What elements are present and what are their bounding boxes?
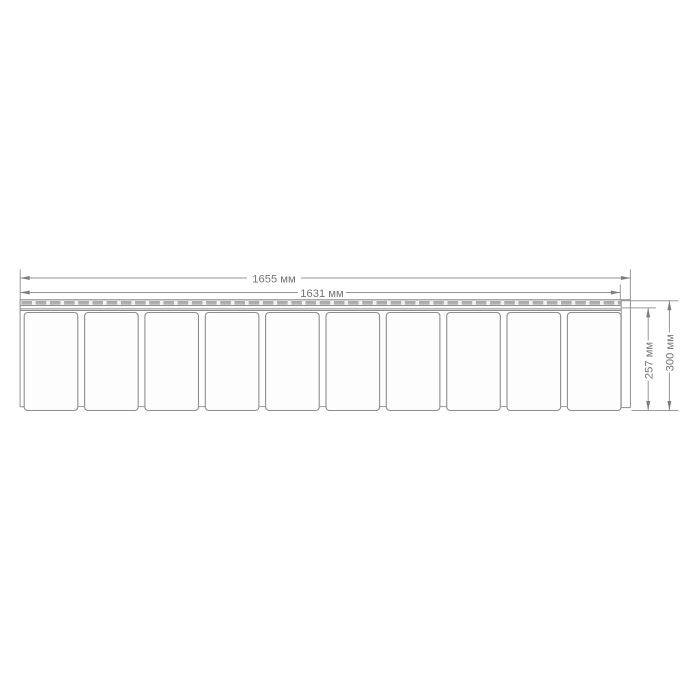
svg-text:257 мм: 257 мм: [644, 342, 656, 379]
svg-text:300 мм: 300 мм: [665, 334, 677, 371]
svg-text:1655 мм: 1655 мм: [252, 274, 295, 286]
svg-text:1631 мм: 1631 мм: [300, 288, 343, 300]
